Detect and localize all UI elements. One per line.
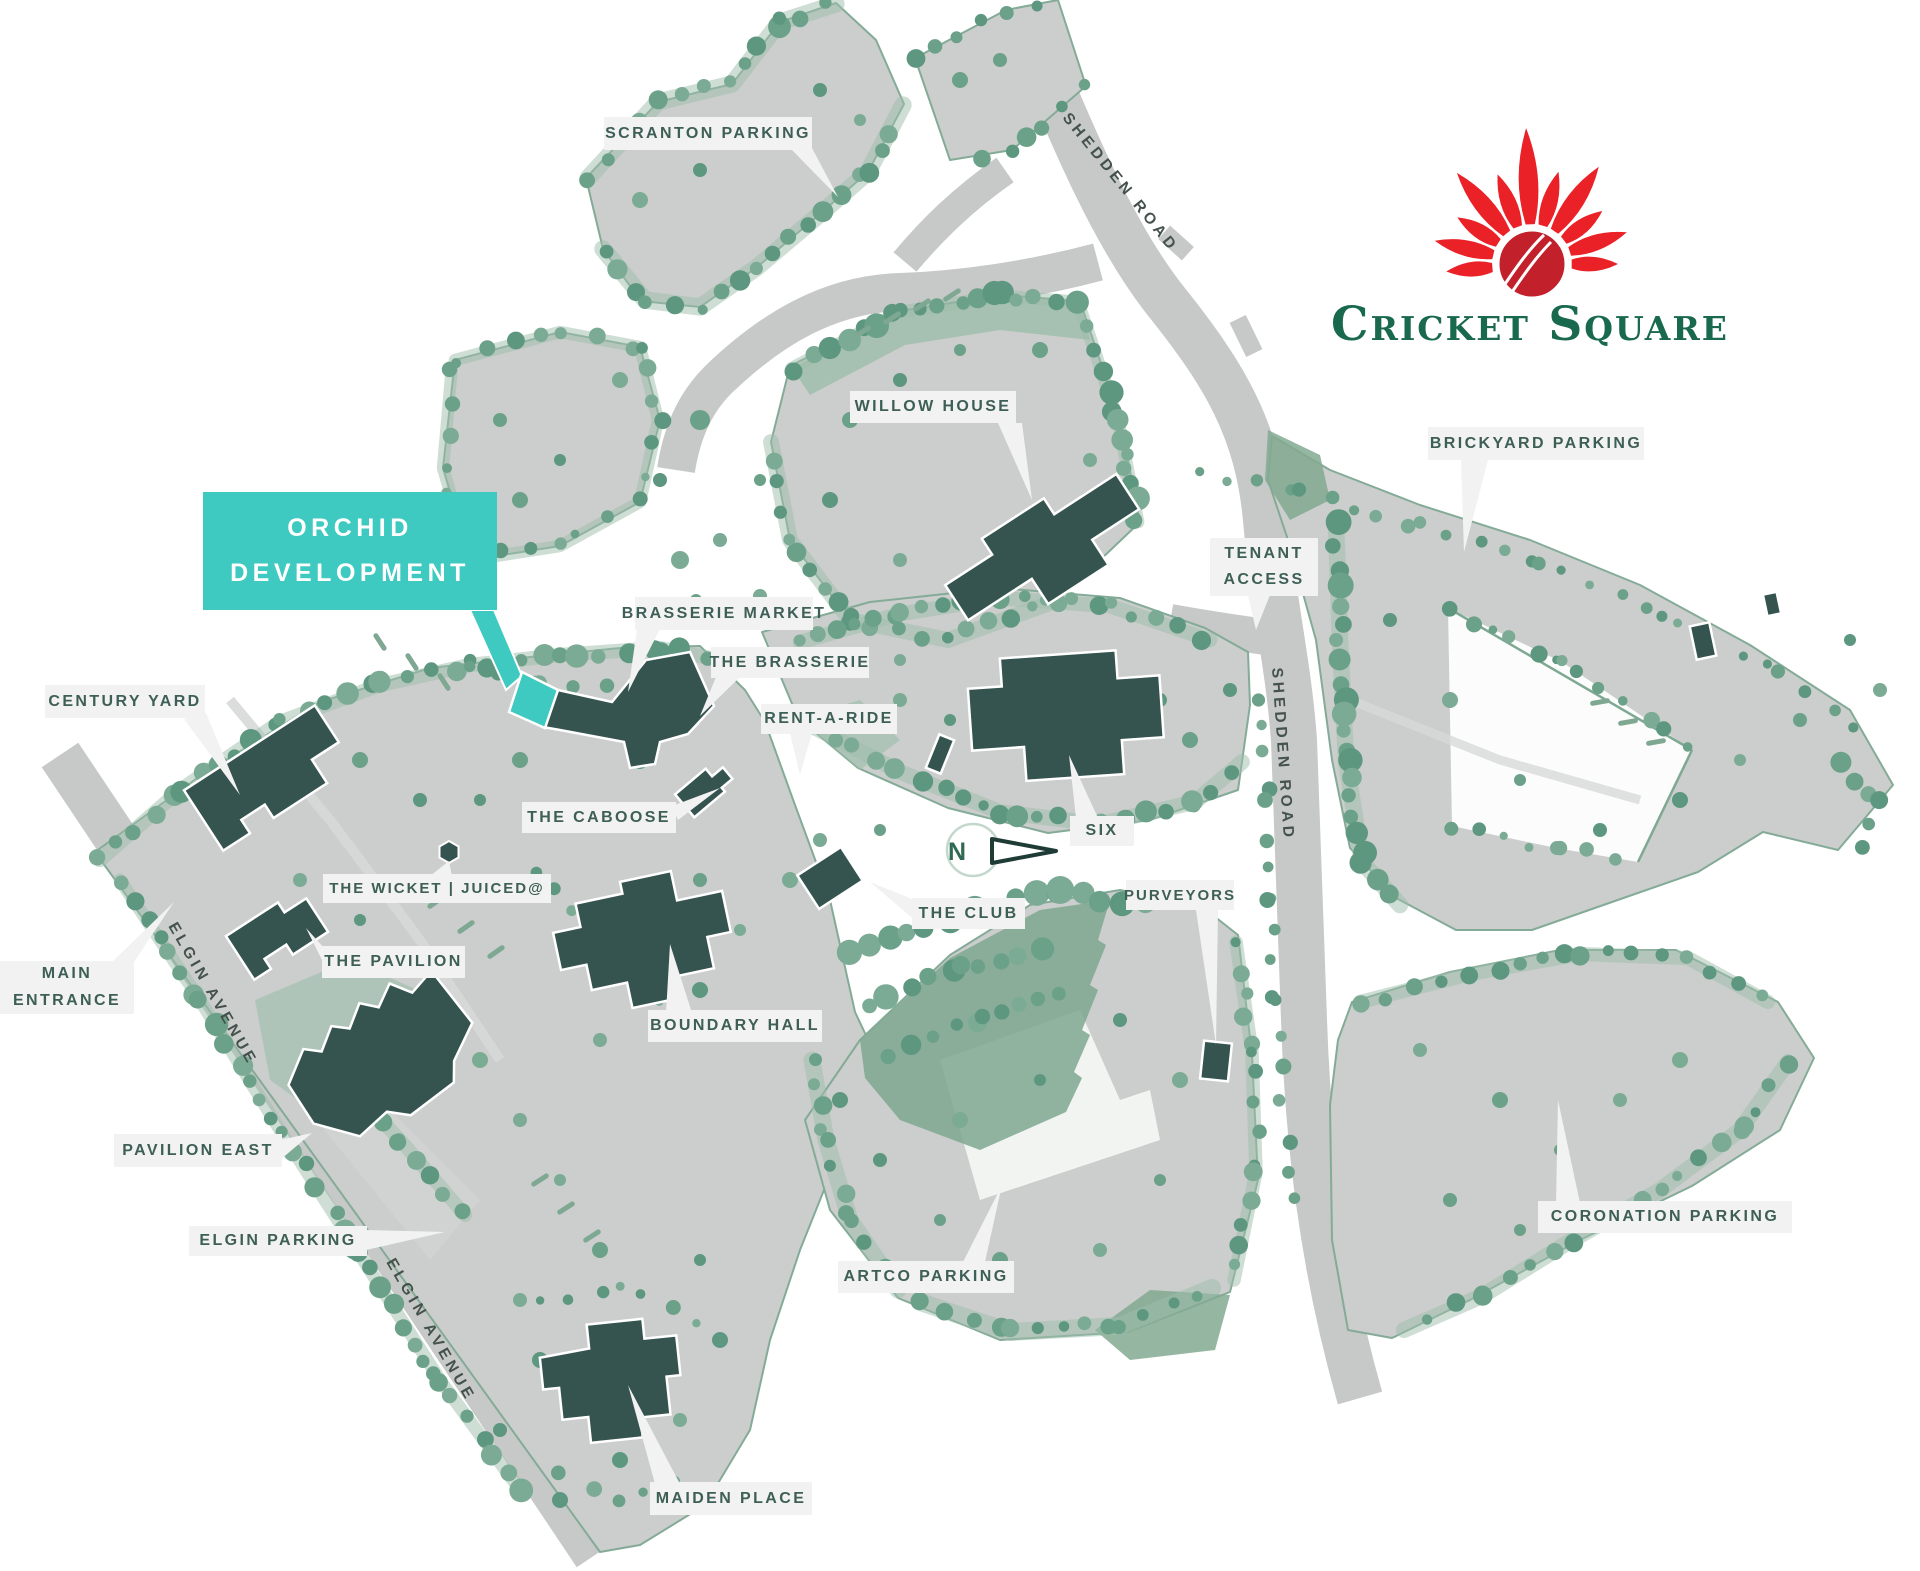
label-maiden-place: MAIDEN PLACE <box>650 1482 812 1515</box>
label-brickyard-parking: BRICKYARD PARKING <box>1428 427 1644 460</box>
label-the-club: THE CLUB <box>912 898 1025 929</box>
compass-arrow-icon <box>992 839 1056 863</box>
label-rent-a-ride: RENT-A-RIDE <box>761 704 897 734</box>
label-elgin-parking: ELGIN PARKING <box>189 1226 367 1256</box>
logo-cricket-ball-icon <box>1498 230 1566 298</box>
label-boundary-hall: BOUNDARY HALL <box>648 1010 822 1042</box>
label-the-wicket-juiced: THE WICKET | JUICED@ <box>323 874 551 903</box>
map-canvas: N SHEDDEN ROAD SHEDDEN ROAD ELGIN AVENUE… <box>0 0 1920 1571</box>
parcel-coronation <box>1330 950 1814 1338</box>
label-century-yard: CENTURY YARD <box>45 685 205 718</box>
road-scranton-spur <box>905 170 1005 262</box>
label-the-caboose: THE CABOOSE <box>522 802 676 833</box>
building-purveyors <box>1200 1041 1232 1082</box>
label-the-brasserie: THE BRASSERIE <box>711 647 869 678</box>
label-scranton-parking: SCRANTON PARKING <box>604 117 812 150</box>
site-map: N SHEDDEN ROAD SHEDDEN ROAD ELGIN AVENUE… <box>0 0 1920 1571</box>
label-brasserie-market: BRASSERIE MARKET <box>635 597 813 630</box>
label-main-entrance: MAIN ENTRANCE <box>0 961 134 1014</box>
label-the-pavilion: THE PAVILION <box>322 946 465 978</box>
parcel-scranton <box>586 3 904 307</box>
label-six: SIX <box>1070 816 1134 846</box>
label-pavilion-east: PAVILION EAST <box>114 1134 282 1167</box>
label-willow-house: WILLOW HOUSE <box>850 391 1016 423</box>
label-tenant-access: TENANT ACCESS <box>1210 538 1318 596</box>
label-coronation-parking: CORONATION PARKING <box>1538 1201 1792 1233</box>
building-the-wicket <box>440 841 459 863</box>
compass-north-label: N <box>948 838 967 866</box>
logo-wordmark: Cricket Square <box>1250 297 1810 352</box>
label-artco-parking: ARTCO PARKING <box>838 1261 1014 1293</box>
label-orchid-development: ORCHID DEVELOPMENT <box>203 492 497 610</box>
label-purveyors: PURVEYORS <box>1126 880 1234 910</box>
building-brickyard-hut-2 <box>1763 592 1781 616</box>
